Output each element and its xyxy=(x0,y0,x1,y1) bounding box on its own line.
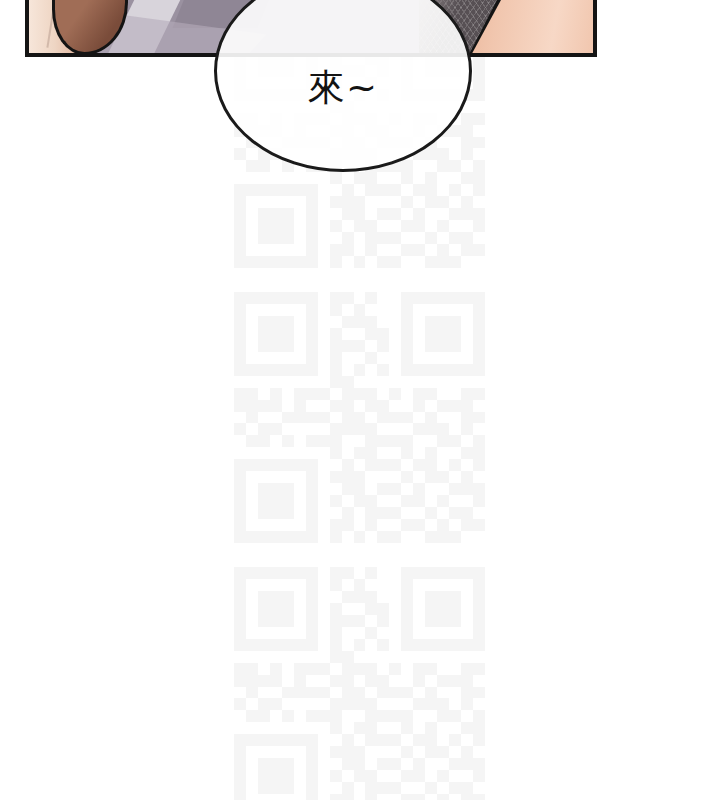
qr-module xyxy=(449,328,461,340)
qr-module xyxy=(389,208,401,220)
qr-module xyxy=(342,663,354,675)
qr-module xyxy=(234,471,246,483)
qr-module xyxy=(473,567,485,579)
qr-module xyxy=(330,519,342,531)
qr-module xyxy=(270,495,282,507)
qr-module xyxy=(306,459,318,471)
qr-module xyxy=(270,758,282,770)
qr-module xyxy=(270,184,282,196)
qr-module xyxy=(473,447,485,459)
qr-module xyxy=(437,639,449,651)
qr-module xyxy=(461,483,473,495)
qr-module xyxy=(365,627,377,639)
qr-module xyxy=(413,567,425,579)
qr-module xyxy=(413,400,425,412)
qr-module xyxy=(306,328,318,340)
qr-module xyxy=(306,388,318,400)
qr-watermark-tile xyxy=(234,292,485,543)
qr-module xyxy=(365,794,377,800)
qr-module xyxy=(473,615,485,627)
qr-module xyxy=(270,388,282,400)
qr-module xyxy=(461,364,473,376)
qr-module xyxy=(437,292,449,304)
qr-module xyxy=(330,364,342,376)
qr-module xyxy=(377,483,389,495)
qr-module xyxy=(449,125,461,137)
qr-module xyxy=(425,412,437,424)
qr-module xyxy=(473,435,485,447)
qr-module xyxy=(270,734,282,746)
qr-module xyxy=(294,459,306,471)
comic-page: 來~ xyxy=(0,0,720,800)
qr-module xyxy=(294,531,306,543)
qr-module xyxy=(377,758,389,770)
qr-module xyxy=(461,567,473,579)
qr-module xyxy=(234,400,246,412)
qr-module xyxy=(246,388,258,400)
qr-module xyxy=(354,423,366,435)
qr-module xyxy=(437,160,449,172)
qr-module xyxy=(294,734,306,746)
qr-module xyxy=(270,567,282,579)
qr-module xyxy=(389,412,401,424)
qr-module xyxy=(318,663,330,675)
qr-module xyxy=(282,184,294,196)
qr-module xyxy=(234,758,246,770)
qr-module xyxy=(413,459,425,471)
qr-module xyxy=(258,734,270,746)
qr-module xyxy=(461,639,473,651)
qr-module xyxy=(270,663,282,675)
qr-module xyxy=(365,782,377,794)
qr-module xyxy=(377,208,389,220)
qr-module xyxy=(437,519,449,531)
qr-module xyxy=(425,196,437,208)
qr-module xyxy=(234,232,246,244)
qr-module xyxy=(246,435,258,447)
qr-module xyxy=(246,364,258,376)
qr-module xyxy=(449,208,461,220)
qr-module xyxy=(389,663,401,675)
qr-module xyxy=(330,710,342,722)
qr-module xyxy=(473,758,485,770)
qr-module xyxy=(342,316,354,328)
qr-module xyxy=(354,746,366,758)
qr-module xyxy=(282,734,294,746)
qr-module xyxy=(282,710,294,722)
qr-module xyxy=(234,794,246,800)
qr-module xyxy=(306,794,318,800)
qr-module xyxy=(425,388,437,400)
qr-module xyxy=(473,603,485,615)
qr-module xyxy=(234,208,246,220)
qr-module xyxy=(425,423,437,435)
qr-module xyxy=(425,639,437,651)
qr-module xyxy=(449,232,461,244)
qr-module xyxy=(425,232,437,244)
qr-module xyxy=(473,734,485,746)
qr-module xyxy=(282,615,294,627)
qr-module xyxy=(449,160,461,172)
qr-module xyxy=(342,675,354,687)
qr-module xyxy=(365,770,377,782)
qr-module xyxy=(473,65,485,77)
qr-module xyxy=(234,782,246,794)
qr-module xyxy=(449,710,461,722)
qr-module xyxy=(282,639,294,651)
qr-module xyxy=(365,675,377,687)
qr-module xyxy=(461,388,473,400)
qr-module xyxy=(306,184,318,196)
qr-module xyxy=(306,663,318,675)
qr-module xyxy=(318,388,330,400)
qr-module xyxy=(461,722,473,734)
qr-module xyxy=(258,591,270,603)
speech-bubble-text: 來~ xyxy=(217,69,469,106)
qr-module xyxy=(342,567,354,579)
qr-module xyxy=(318,687,330,699)
qr-module xyxy=(306,304,318,316)
qr-module xyxy=(270,423,282,435)
qr-module xyxy=(258,232,270,244)
qr-module xyxy=(377,328,389,340)
qr-module xyxy=(377,435,389,447)
qr-module xyxy=(449,591,461,603)
qr-module xyxy=(294,567,306,579)
qr-module xyxy=(258,292,270,304)
qr-module xyxy=(425,603,437,615)
qr-module xyxy=(270,208,282,220)
qr-module xyxy=(449,615,461,627)
qr-module xyxy=(282,316,294,328)
qr-module xyxy=(425,292,437,304)
qr-module xyxy=(306,412,318,424)
qr-module xyxy=(354,483,366,495)
qr-module xyxy=(306,352,318,364)
qr-module xyxy=(306,220,318,232)
qr-module xyxy=(377,459,389,471)
qr-module xyxy=(449,734,461,746)
qr-module xyxy=(354,758,366,770)
qr-module xyxy=(401,292,413,304)
qr-module xyxy=(330,256,342,268)
qr-module xyxy=(258,698,270,710)
qr-module xyxy=(401,639,413,651)
qr-module xyxy=(330,615,342,627)
qr-module xyxy=(234,148,246,160)
qr-module xyxy=(401,579,413,591)
qr-module xyxy=(413,519,425,531)
qr-module xyxy=(330,328,342,340)
qr-module xyxy=(330,651,342,663)
qr-module xyxy=(377,531,389,543)
qr-module xyxy=(342,519,354,531)
qr-module xyxy=(401,352,413,364)
qr-module xyxy=(365,447,377,459)
qr-module xyxy=(461,196,473,208)
qr-module xyxy=(342,388,354,400)
qr-module xyxy=(449,400,461,412)
qr-module xyxy=(330,722,342,734)
qr-module xyxy=(473,519,485,531)
qr-module xyxy=(401,519,413,531)
qr-module xyxy=(306,232,318,244)
qr-module xyxy=(342,615,354,627)
qr-module xyxy=(282,340,294,352)
qr-module xyxy=(413,483,425,495)
qr-module xyxy=(306,208,318,220)
qr-module xyxy=(294,663,306,675)
qr-module xyxy=(473,172,485,184)
qr-module xyxy=(365,244,377,256)
qr-module xyxy=(413,208,425,220)
qr-module xyxy=(365,352,377,364)
qr-module xyxy=(306,256,318,268)
qr-module xyxy=(258,364,270,376)
qr-module xyxy=(401,447,413,459)
qr-module xyxy=(437,710,449,722)
qr-module xyxy=(234,770,246,782)
qr-module xyxy=(449,531,461,543)
qr-module xyxy=(401,196,413,208)
qr-module xyxy=(342,698,354,710)
qr-module xyxy=(461,663,473,675)
qr-module xyxy=(413,698,425,710)
qr-module xyxy=(413,663,425,675)
qr-module xyxy=(282,412,294,424)
qr-module xyxy=(473,160,485,172)
qr-module xyxy=(377,232,389,244)
qr-module xyxy=(401,615,413,627)
qr-module xyxy=(342,758,354,770)
qr-module xyxy=(354,172,366,184)
qr-module xyxy=(234,196,246,208)
qr-module xyxy=(258,256,270,268)
qr-module xyxy=(342,651,354,663)
qr-module xyxy=(437,148,449,160)
qr-module xyxy=(365,172,377,184)
qr-module xyxy=(389,435,401,447)
qr-module xyxy=(413,770,425,782)
qr-module xyxy=(437,495,449,507)
qr-module xyxy=(234,459,246,471)
qr-module xyxy=(354,220,366,232)
qr-module xyxy=(354,615,366,627)
qr-module xyxy=(401,304,413,316)
qr-module xyxy=(425,471,437,483)
qr-module xyxy=(270,770,282,782)
qr-module xyxy=(306,627,318,639)
qr-module xyxy=(401,364,413,376)
qr-module xyxy=(282,292,294,304)
qr-module xyxy=(401,746,413,758)
qr-module xyxy=(270,364,282,376)
qr-module xyxy=(306,758,318,770)
qr-module xyxy=(413,244,425,256)
qr-module xyxy=(342,196,354,208)
qr-module xyxy=(449,364,461,376)
qr-module xyxy=(401,435,413,447)
qr-module xyxy=(282,328,294,340)
qr-module xyxy=(461,507,473,519)
qr-module xyxy=(258,675,270,687)
qr-module xyxy=(294,400,306,412)
qr-module xyxy=(365,220,377,232)
qr-module xyxy=(389,256,401,268)
qr-module xyxy=(318,710,330,722)
qr-module xyxy=(234,483,246,495)
qr-module xyxy=(306,615,318,627)
qr-module xyxy=(234,495,246,507)
qr-module xyxy=(234,698,246,710)
qr-module xyxy=(270,232,282,244)
qr-module xyxy=(425,567,437,579)
qr-module xyxy=(401,340,413,352)
qr-module xyxy=(401,471,413,483)
qr-module xyxy=(377,184,389,196)
qr-module xyxy=(270,675,282,687)
qr-module xyxy=(377,710,389,722)
qr-module xyxy=(461,232,473,244)
qr-module xyxy=(473,687,485,699)
qr-module xyxy=(330,675,342,687)
qr-module xyxy=(234,340,246,352)
qr-module xyxy=(234,507,246,519)
qr-module xyxy=(413,734,425,746)
qr-module xyxy=(282,232,294,244)
qr-module xyxy=(473,220,485,232)
qr-module xyxy=(270,340,282,352)
qr-module xyxy=(413,639,425,651)
qr-module xyxy=(330,447,342,459)
qr-module xyxy=(306,244,318,256)
qr-module xyxy=(258,208,270,220)
qr-module xyxy=(449,603,461,615)
qr-module xyxy=(389,531,401,543)
qr-module xyxy=(270,782,282,794)
qr-module xyxy=(234,304,246,316)
qr-module xyxy=(461,208,473,220)
qr-module xyxy=(342,794,354,800)
qr-module xyxy=(425,663,437,675)
qr-module xyxy=(425,782,437,794)
qr-module xyxy=(270,531,282,543)
qr-module xyxy=(330,471,342,483)
qr-module xyxy=(365,591,377,603)
qr-module xyxy=(437,328,449,340)
qr-module xyxy=(401,794,413,800)
qr-module xyxy=(425,531,437,543)
qr-module xyxy=(330,196,342,208)
qr-module xyxy=(461,113,473,125)
qr-module xyxy=(234,639,246,651)
qr-module xyxy=(461,292,473,304)
qr-module xyxy=(389,782,401,794)
qr-module xyxy=(294,364,306,376)
qr-module xyxy=(306,364,318,376)
qr-module xyxy=(449,675,461,687)
qr-module xyxy=(330,292,342,304)
qr-module xyxy=(354,591,366,603)
qr-module xyxy=(234,579,246,591)
qr-module xyxy=(258,770,270,782)
qr-module xyxy=(246,734,258,746)
qr-module xyxy=(437,364,449,376)
qr-module xyxy=(425,734,437,746)
qr-module xyxy=(330,746,342,758)
qr-module xyxy=(354,304,366,316)
qr-module xyxy=(342,459,354,471)
qr-module xyxy=(401,495,413,507)
qr-module xyxy=(246,292,258,304)
qr-module xyxy=(437,256,449,268)
qr-module xyxy=(234,220,246,232)
qr-module xyxy=(318,435,330,447)
qr-module xyxy=(413,495,425,507)
qr-module xyxy=(306,495,318,507)
qr-module xyxy=(342,423,354,435)
qr-module xyxy=(282,208,294,220)
qr-module xyxy=(413,292,425,304)
qr-module xyxy=(461,782,473,794)
qr-module xyxy=(294,292,306,304)
qr-module xyxy=(377,412,389,424)
qr-module xyxy=(365,316,377,328)
qr-module xyxy=(473,304,485,316)
qr-module xyxy=(258,710,270,722)
qr-module xyxy=(354,412,366,424)
qr-module xyxy=(246,675,258,687)
qr-module xyxy=(365,400,377,412)
qr-module xyxy=(449,184,461,196)
qr-module xyxy=(425,256,437,268)
qr-module xyxy=(449,639,461,651)
qr-module xyxy=(377,639,389,651)
qr-module xyxy=(461,746,473,758)
qr-module xyxy=(270,220,282,232)
qr-module xyxy=(365,459,377,471)
qr-module xyxy=(330,376,342,388)
qr-module xyxy=(246,639,258,651)
qr-module xyxy=(437,220,449,232)
qr-module xyxy=(306,292,318,304)
qr-module xyxy=(425,184,437,196)
qr-module xyxy=(425,316,437,328)
qr-module xyxy=(246,400,258,412)
qr-module xyxy=(401,591,413,603)
qr-module xyxy=(389,687,401,699)
qr-module xyxy=(294,687,306,699)
qr-module xyxy=(258,782,270,794)
qr-module xyxy=(234,567,246,579)
qr-module xyxy=(330,423,342,435)
qr-module xyxy=(306,531,318,543)
qr-module xyxy=(461,137,473,149)
qr-module xyxy=(258,615,270,627)
qr-module xyxy=(234,531,246,543)
qr-module xyxy=(449,256,461,268)
qr-module xyxy=(258,531,270,543)
qr-module xyxy=(354,495,366,507)
qr-module xyxy=(234,256,246,268)
qr-module xyxy=(282,507,294,519)
qr-module xyxy=(437,567,449,579)
qr-module xyxy=(449,507,461,519)
qr-module xyxy=(425,687,437,699)
qr-module xyxy=(425,447,437,459)
qr-module xyxy=(246,567,258,579)
qr-module xyxy=(473,364,485,376)
